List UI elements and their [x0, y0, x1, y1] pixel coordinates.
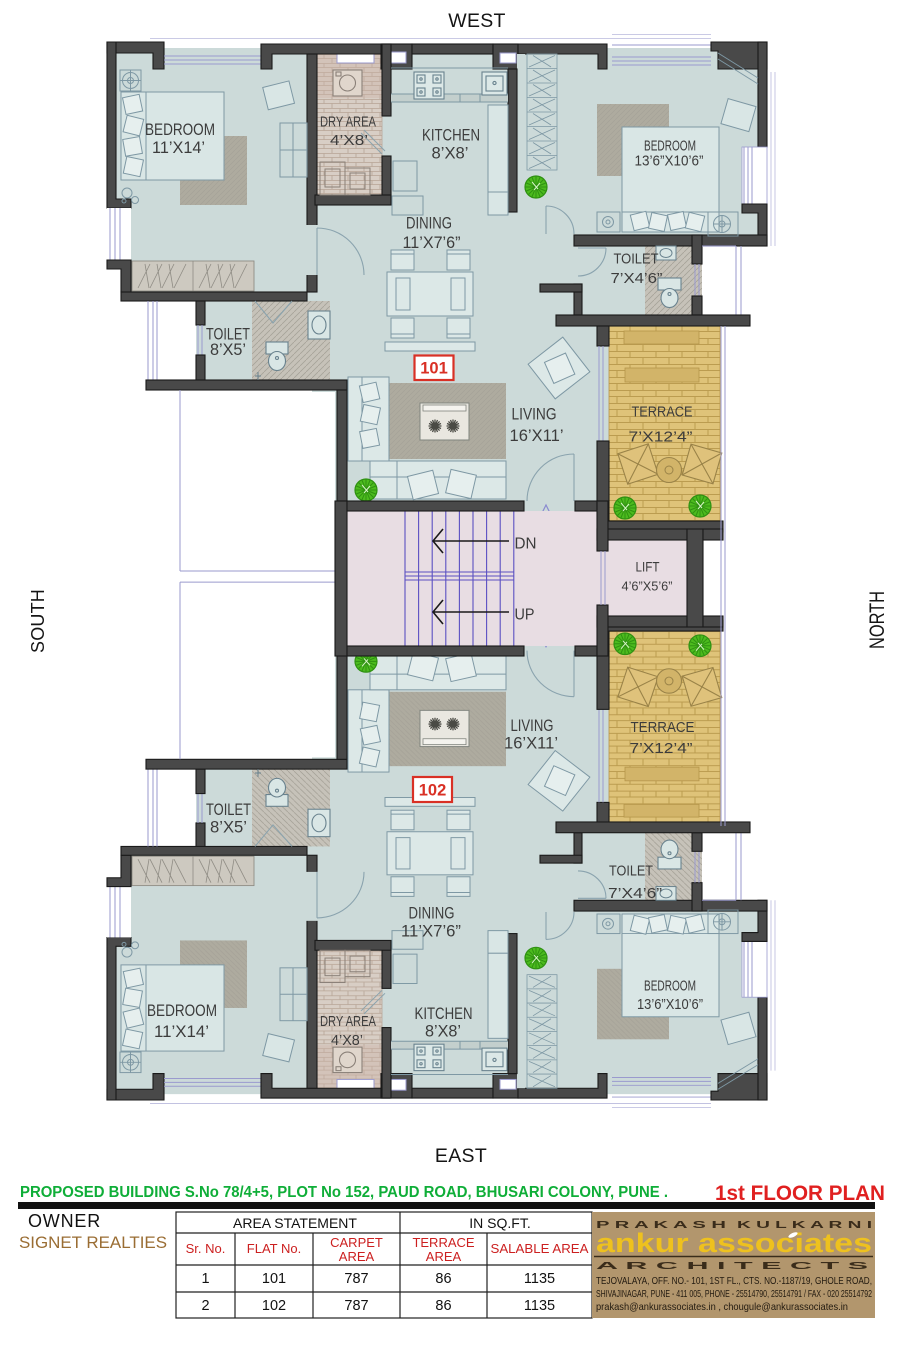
svg-text:TERRACE: TERRACE [632, 404, 693, 421]
svg-text:11’X7’6”: 11’X7’6” [401, 922, 461, 941]
svg-text:BEDROOM: BEDROOM [147, 1001, 217, 1020]
svg-text:101: 101 [420, 360, 448, 378]
svg-text:CARPET: CARPET [330, 1235, 383, 1250]
svg-text:OWNER: OWNER [28, 1211, 101, 1231]
svg-text:8’X8’: 8’X8’ [432, 144, 469, 163]
svg-text:BEDROOM: BEDROOM [644, 978, 696, 995]
svg-text:SHIVAJINAGAR, PUNE - 411 005,: SHIVAJINAGAR, PUNE - 411 005, PHONE - 25… [596, 1288, 872, 1300]
svg-text:4’X8’: 4’X8’ [331, 1032, 363, 1049]
svg-text:TOILET: TOILET [206, 800, 251, 819]
svg-text:BEDROOM: BEDROOM [145, 120, 215, 139]
svg-text:DINING: DINING [406, 214, 452, 233]
svg-text:102: 102 [419, 782, 447, 800]
svg-text:WEST: WEST [448, 10, 506, 32]
svg-text:IN SQ.FT.: IN SQ.FT. [469, 1215, 530, 1231]
svg-text:UP: UP [515, 607, 535, 624]
svg-text:787: 787 [344, 1298, 368, 1314]
svg-text:11’X7’6”: 11’X7’6” [403, 233, 461, 252]
svg-text:86: 86 [435, 1271, 451, 1287]
svg-text:A R C H I T E C T S: A R C H I T E C T S [596, 1260, 868, 1272]
svg-text:7’X4’6”: 7’X4’6” [611, 270, 663, 287]
svg-text:AREA: AREA [426, 1249, 462, 1264]
svg-text:8’X5’: 8’X5’ [210, 818, 247, 837]
svg-text:787: 787 [344, 1271, 368, 1287]
svg-text:TOILET: TOILET [609, 863, 653, 880]
svg-text:102: 102 [262, 1298, 286, 1314]
svg-text:7’X12’4”: 7’X12’4” [629, 429, 693, 446]
svg-text:11’X14’: 11’X14’ [152, 138, 205, 157]
svg-text:KITCHEN: KITCHEN [422, 126, 480, 145]
svg-text:TERRACE: TERRACE [412, 1235, 474, 1250]
svg-text:8’X8’: 8’X8’ [425, 1022, 461, 1041]
svg-text:101: 101 [262, 1271, 286, 1287]
svg-text:Sr. No.: Sr. No. [186, 1241, 226, 1256]
svg-text:LIVING: LIVING [511, 716, 554, 735]
svg-text:1135: 1135 [524, 1298, 555, 1314]
svg-text:DINING: DINING [409, 904, 455, 923]
svg-text:LIVING: LIVING [512, 405, 557, 424]
svg-text:13’6”X10’6”: 13’6”X10’6” [635, 153, 704, 170]
svg-text:FLAT No.: FLAT No. [247, 1241, 301, 1256]
svg-text:NORTH: NORTH [866, 591, 889, 649]
svg-text:TERRACE: TERRACE [631, 719, 695, 736]
svg-text:EAST: EAST [435, 1145, 487, 1167]
svg-text:TEJOVALAYA, OFF. NO.- 101, 1ST: TEJOVALAYA, OFF. NO.- 101, 1ST FL., CTS.… [596, 1275, 872, 1287]
svg-text:4’X8’: 4’X8’ [330, 132, 368, 149]
svg-text:16’X11’: 16’X11’ [504, 734, 558, 753]
svg-text:1: 1 [201, 1271, 209, 1287]
svg-text:PROPOSED BUILDING S.No 78/4+5,: PROPOSED BUILDING S.No 78/4+5, PLOT No 1… [20, 1184, 668, 1201]
svg-text:AREA STATEMENT: AREA STATEMENT [233, 1215, 357, 1231]
svg-text:DN: DN [515, 536, 537, 553]
svg-text:8’X5’: 8’X5’ [210, 340, 246, 359]
svg-text:SOUTH: SOUTH [28, 589, 48, 653]
svg-text:4’6”X5’6”: 4’6”X5’6” [622, 580, 673, 594]
svg-text:TOILET: TOILET [614, 251, 659, 268]
svg-text:prakash@ankurassociates.in , c: prakash@ankurassociates.in , chougule@an… [596, 1301, 848, 1313]
svg-text:LIFT: LIFT [636, 560, 660, 575]
svg-text:DRY AREA: DRY AREA [320, 114, 376, 131]
svg-text:1st FLOOR PLAN: 1st FLOOR PLAN [715, 1182, 885, 1205]
svg-text:16’X11’: 16’X11’ [510, 426, 564, 445]
svg-text:DRY AREA: DRY AREA [320, 1013, 376, 1030]
svg-text:7’X12’4”: 7’X12’4” [630, 740, 693, 757]
svg-text:86: 86 [435, 1298, 451, 1314]
svg-text:ankur associates: ankur associates [596, 1228, 872, 1258]
svg-text:KITCHEN: KITCHEN [415, 1004, 473, 1023]
svg-text:1135: 1135 [524, 1271, 555, 1287]
svg-text:SIGNET REALTIES: SIGNET REALTIES [19, 1233, 167, 1252]
svg-text:SALABLE AREA: SALABLE AREA [491, 1241, 589, 1256]
svg-text:13’6”X10’6”: 13’6”X10’6” [637, 996, 703, 1013]
svg-text:AREA: AREA [339, 1249, 375, 1264]
svg-text:7’X4’6”: 7’X4’6” [608, 885, 662, 902]
svg-text:11’X14’: 11’X14’ [154, 1022, 209, 1041]
svg-text:2: 2 [201, 1298, 209, 1314]
